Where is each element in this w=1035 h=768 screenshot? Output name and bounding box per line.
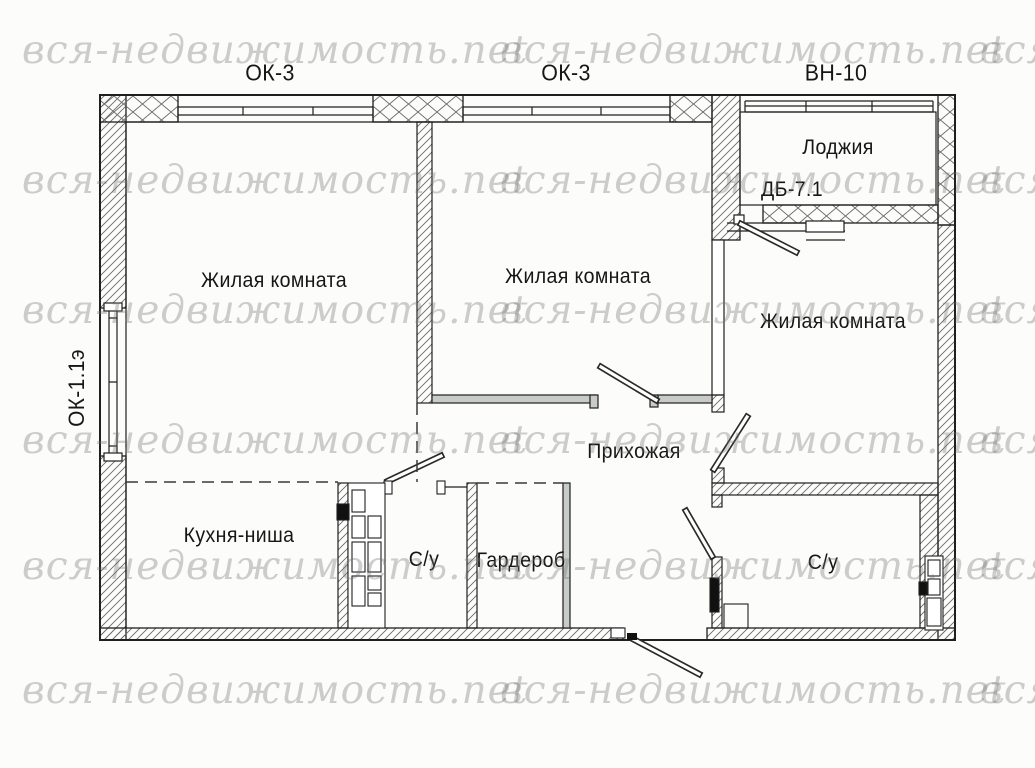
label-window-ok3-left: ОК-3 (245, 60, 295, 87)
wall-room1-room2 (417, 122, 432, 403)
vent-shaft-marker (919, 582, 927, 595)
door-jamb-bathleft-b (437, 481, 445, 494)
label-kitchen-niche: Кухня-ниша (184, 524, 295, 548)
bathright-duct-outline (724, 604, 748, 628)
wall-right-loggia (938, 95, 955, 225)
window-ok3-left (178, 107, 373, 122)
wall-room3-hall-stub (712, 395, 724, 412)
wall-room2-bottom-a (432, 395, 596, 403)
wall-bottom-left (100, 628, 623, 640)
wall-room2-room3 (712, 240, 724, 395)
window-ok3-middle (463, 107, 670, 122)
door-jamb-room2-a (590, 395, 598, 408)
wall-bathright-left-stub (712, 495, 722, 507)
door-jamb-entrance (611, 628, 625, 638)
entrance-threshold (627, 633, 637, 640)
label-hallway: Прихожая (587, 440, 680, 464)
wall-top-corner-left (100, 95, 178, 122)
label-window-ok11e: ОК-1.1э (64, 349, 90, 427)
label-wardrobe: Гардероб (477, 549, 566, 573)
label-living-room-1: Жилая комната (201, 269, 347, 293)
wall-bottom-right (707, 628, 955, 640)
window-vn10-loggia (745, 101, 933, 112)
wall-bathright-top (712, 483, 938, 495)
wall-room2-bottom-b (658, 395, 712, 403)
floorplan-drawing (0, 0, 1035, 768)
label-window-vn10: ВН-10 (805, 60, 867, 87)
wall-bathleft-wardrobe (467, 483, 477, 628)
label-window-ok3-middle: ОК-3 (541, 60, 591, 87)
dashed-openings (126, 403, 563, 483)
window-ok11e-left (104, 303, 122, 461)
label-loggia: Лоджия (802, 136, 873, 160)
wall-top-middle (373, 95, 463, 122)
wall-left-lower (100, 456, 126, 640)
wall-top-right (670, 95, 712, 122)
label-bathroom-right: С/у (808, 551, 838, 575)
label-bathroom-left: С/у (409, 548, 439, 572)
bathright-riser-marker (710, 578, 719, 612)
label-loggia-door: ДБ-7.1 (761, 178, 823, 202)
vent-shaft-marker (337, 504, 349, 520)
wall-loggia-parapet (763, 205, 938, 223)
floorplan-canvas: ОК-3 ОК-3 ВН-10 ОК-1.1э Лоджия ДБ-7.1 Жи… (0, 0, 1035, 768)
label-living-room-3: Жилая комната (760, 310, 906, 334)
wall-left-upper (100, 95, 126, 308)
label-living-room-2: Жилая комната (505, 265, 651, 289)
